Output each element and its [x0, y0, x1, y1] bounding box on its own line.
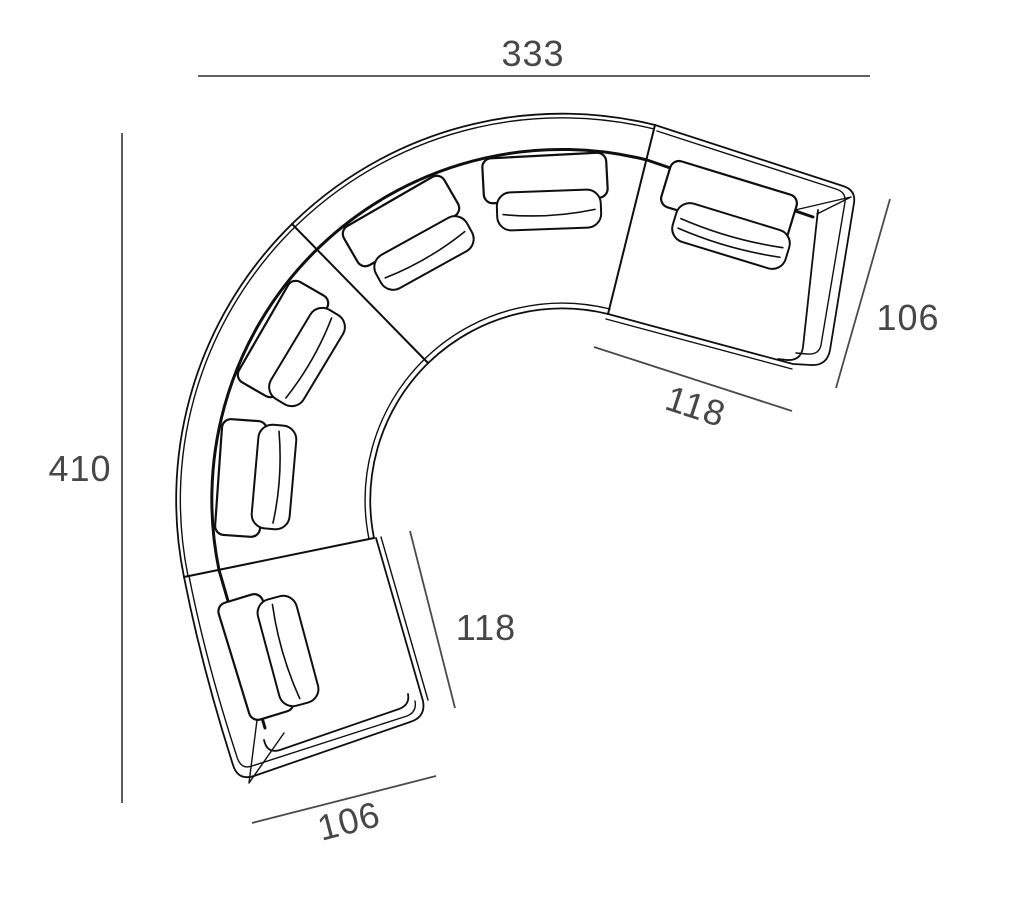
bottom-module-seat-front-double — [381, 537, 428, 700]
dim-label-overall-width: 333 — [501, 33, 564, 74]
dimension-bottom-module-width: 118 — [410, 531, 516, 708]
bottom-arm-corner-seam — [249, 720, 284, 783]
right-module-seat-front-double — [606, 319, 792, 369]
dimension-overall-depth: 410 — [48, 133, 122, 803]
dim-label-right-module-width: 118 — [661, 377, 731, 435]
inner-arc-outer-line — [365, 303, 610, 539]
inner-arc — [370, 308, 608, 538]
dim-line-right-arm-depth — [836, 199, 890, 388]
dim-label-overall-depth: 410 — [48, 448, 111, 489]
sofa-dimension-diagram: 333 410 106 118 118 106 — [0, 0, 1033, 901]
division-bottom — [184, 538, 374, 577]
dim-label-right-arm-depth: 106 — [876, 297, 939, 338]
dim-label-bottom-module-width: 118 — [456, 607, 516, 648]
dimension-right-module-width: 118 — [594, 347, 792, 435]
seat-pillow-top-center — [496, 189, 601, 231]
dimension-right-arm-depth: 106 — [836, 199, 940, 388]
seat-pillow-left-lower — [251, 424, 298, 531]
dim-label-bottom-arm-depth: 106 — [313, 793, 384, 848]
dimension-bottom-arm-depth: 106 — [252, 776, 436, 849]
sofa-drawing — [176, 114, 854, 783]
right-arm-corner-seam — [795, 197, 851, 214]
dimension-overall-width: 333 — [198, 33, 870, 76]
diagram-page: 333 410 106 118 118 106 — [0, 0, 1033, 901]
